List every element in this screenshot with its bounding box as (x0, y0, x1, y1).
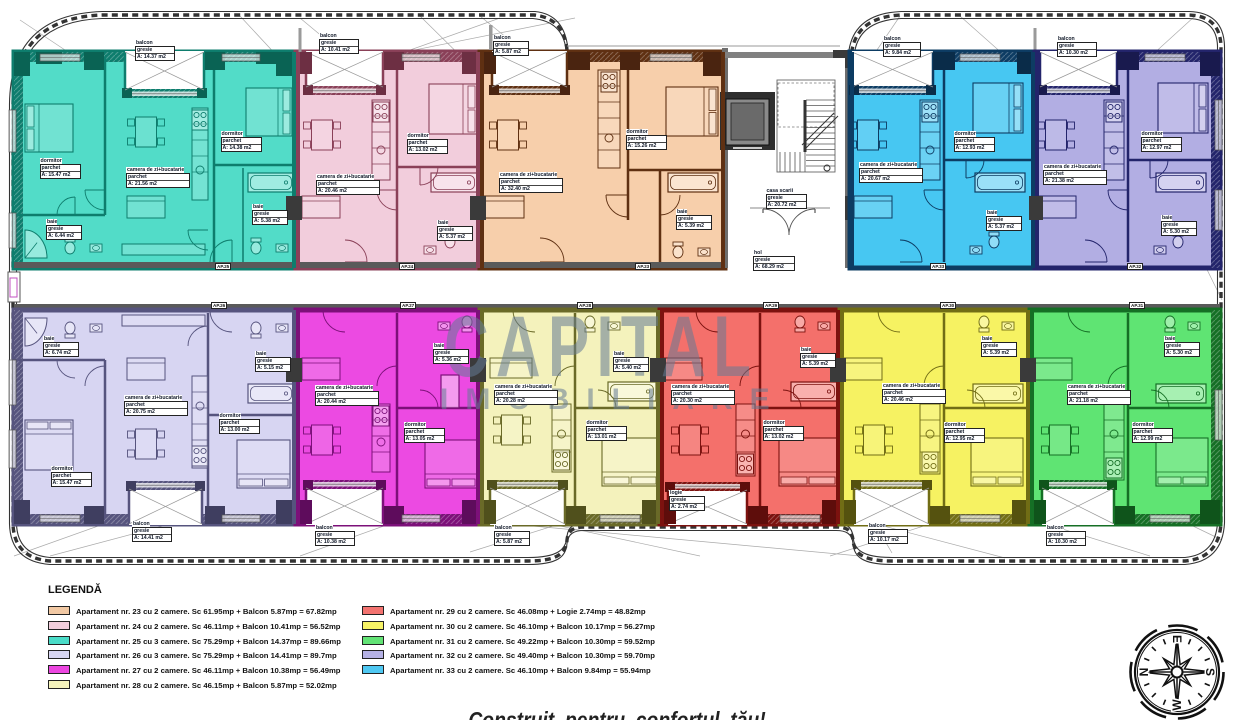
svg-text:S: S (1203, 668, 1217, 676)
svg-text:W: W (1170, 699, 1184, 711)
svg-text:N: N (1137, 668, 1151, 677)
svg-text:E: E (1170, 635, 1184, 643)
